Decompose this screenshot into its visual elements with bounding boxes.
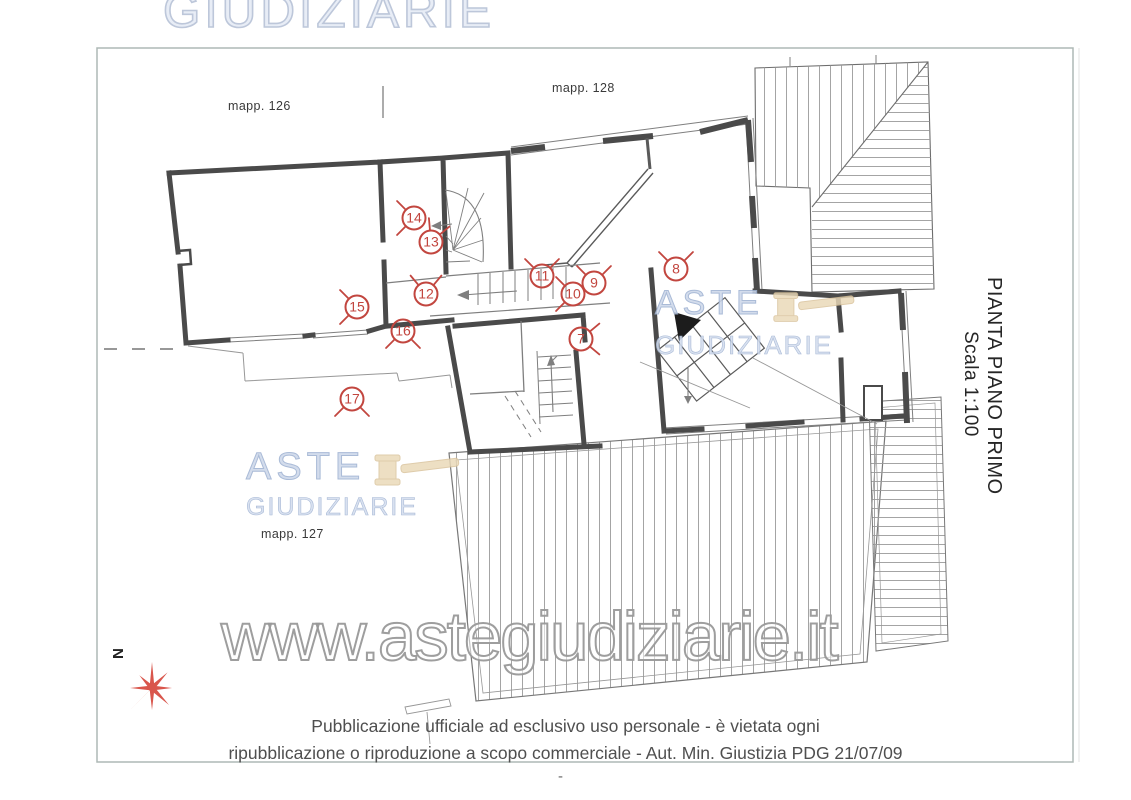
disclaimer-line-2: ripubblicazione o riproduzione a scopo c… — [0, 743, 1131, 764]
scanned-floor-plan-page: GIUDIZIARIE mapp. 126 mapp. 128 mapp. 12… — [0, 0, 1131, 800]
corridor-stair — [386, 221, 610, 316]
north-label: N — [109, 648, 126, 659]
plan-scale: Scala 1:100 — [959, 331, 981, 437]
small-stair-room — [470, 321, 573, 437]
page-mark: - — [558, 768, 563, 785]
roof-hatch — [755, 55, 934, 292]
boundary-lines — [104, 86, 383, 349]
watermark-giudiziarie-text: GIUDIZIARIE — [246, 495, 463, 520]
parcel-label-127: mapp. 127 — [261, 527, 324, 541]
watermark-aste-text: ASTE — [655, 286, 764, 320]
fan-stair — [445, 188, 484, 262]
parcel-label-128: mapp. 128 — [552, 81, 615, 95]
gavel-icon — [371, 450, 463, 494]
watermark-aste-text: ASTE — [246, 448, 365, 486]
north-star-icon — [130, 662, 172, 710]
gavel-icon — [770, 288, 858, 330]
parcel-label-126: mapp. 126 — [228, 99, 291, 113]
site-url-watermark: www.astegiudiziarie.it — [221, 597, 837, 676]
aste-giudiziarie-watermark-center: ASTE GIUDIZIARIE — [655, 286, 858, 358]
plan-title: PIANTA PIANO PRIMO — [982, 277, 1005, 495]
aste-giudiziarie-watermark-bottom: ASTE GIUDIZIARIE — [246, 448, 463, 520]
cropped-logo-watermark: GIUDIZIARIE — [163, 0, 495, 39]
terrace-hatch-large — [405, 421, 886, 744]
watermark-giudiziarie-text: GIUDIZIARIE — [655, 332, 858, 358]
disclaimer-line-1: Pubblicazione ufficiale ad esclusivo uso… — [0, 716, 1131, 737]
terrace-hatch-right — [869, 397, 948, 651]
wall-corner-block — [864, 386, 882, 420]
diagonal-partition — [545, 138, 653, 267]
balcony-strip — [188, 346, 452, 388]
